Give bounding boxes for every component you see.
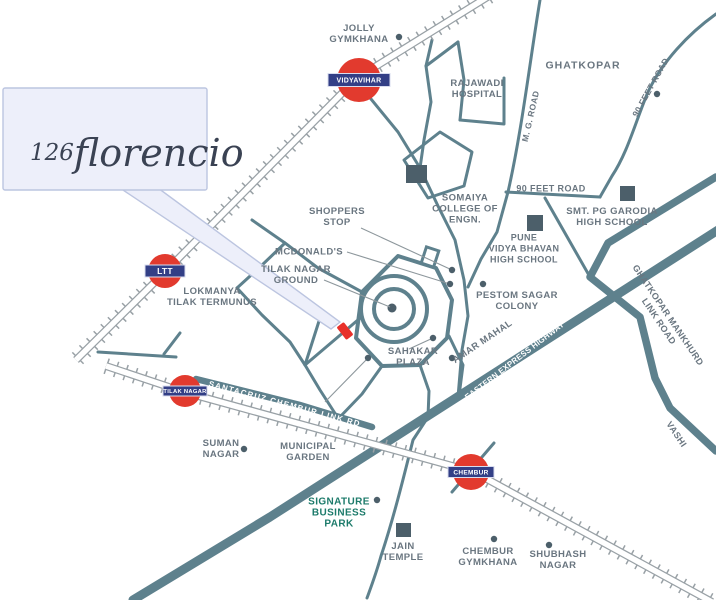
label-line: AMAR MAHAL (451, 318, 515, 366)
pune-vidya-square (527, 215, 543, 231)
sahakar-plaza-dot (430, 335, 436, 341)
jolly-gymkhana-dot (396, 34, 402, 40)
road-jain-curve (367, 365, 429, 598)
map-label-ghatkopar: GHATKOPAR (545, 60, 620, 72)
map-label-municipal-garden: MUNICIPALGARDEN (280, 441, 336, 463)
map-label-lokmanya-terminus: LOKMANYATILAK TERMUNUS (167, 286, 257, 308)
label-line: MCDONALD'S (275, 247, 343, 258)
label-line: BUSINESS (312, 508, 366, 519)
shoppers-leader (361, 228, 452, 270)
label-line: EASTERN EXPRESS HIGHWAY (463, 320, 566, 402)
ground-center-dot (388, 304, 397, 313)
label-line: GHATKOPAR (545, 60, 620, 72)
signature-park-dot (374, 497, 380, 503)
map-label-jolly-gymkhana: JOLLYGYMKHANA (329, 23, 388, 45)
shoppers-stop-dot (449, 267, 455, 273)
label-line: COLLEGE OF (432, 204, 498, 215)
label-line: GARDEN (286, 452, 330, 463)
label-line: NAGAR (540, 560, 577, 571)
label-line: PLAZA (396, 357, 430, 368)
label-line: GYMKHANA (329, 34, 388, 45)
map-label-jain-temple: JAINTEMPLE (383, 541, 424, 563)
map-label-ninety-feet-road-d: 90 FEET ROAD (630, 56, 671, 118)
shubhash-nagar-dot (546, 542, 552, 548)
jain-temple-square (396, 523, 411, 537)
label-line: SHOPPERS (309, 206, 365, 217)
label-line: TEMPLE (383, 552, 424, 563)
label-line: PESTOM SAGAR (476, 290, 558, 301)
label-line: SMT. PG GARODIA (566, 206, 658, 217)
label-line: MUNICIPAL (280, 441, 336, 452)
label-line: COLONY (495, 301, 538, 312)
label-line: GROUND (274, 275, 319, 286)
station-label: VIDYAVIHAR (336, 78, 381, 85)
label-line: JAIN (391, 541, 414, 552)
road-rajawadi-1 (420, 40, 432, 168)
station-label: CHEMBUR (453, 469, 488, 476)
ninety-feet-road-dot (654, 91, 660, 97)
map-label-garodia-school: SMT. PG GARODIAHIGH SCHOOL (566, 206, 658, 228)
map-label-shoppers-stop: SHOPPERSSTOP (309, 206, 365, 228)
chembur-gymkhana-dot (491, 536, 497, 542)
ring-street-dot (365, 355, 371, 361)
map-label-ninety-feet-road-h: 90 FEET ROAD (516, 184, 585, 194)
map-label-pestom-sagar: PESTOM SAGARCOLONY (476, 290, 558, 312)
pestom-sagar-dot (480, 281, 486, 287)
road-90ft-diagonal (600, 14, 716, 197)
station-label: TILAK NAGAR (163, 389, 207, 395)
map-label-mcdonalds: MCDONALD'S (275, 247, 343, 258)
map-labels: JOLLYGYMKHANAGHATKOPARRAJAWADIHOSPITALSO… (167, 23, 706, 571)
map-label-amar-mahal: AMAR MAHAL (451, 318, 515, 366)
label-line: SOMAIYA (442, 193, 488, 204)
label-line: VIDYA BHAVAN (489, 244, 560, 254)
road-colony-s1 (338, 366, 382, 419)
label-line: SUMAN (203, 438, 240, 449)
label-line: HOSPITAL (452, 89, 503, 100)
map-label-shubhash-nagar: SHUBHASHNAGAR (529, 549, 586, 571)
somaiya-square (406, 165, 427, 183)
label-line: TILAK NAGAR (261, 264, 331, 275)
label-line: LOKMANYA (183, 286, 240, 297)
map-label-somaiya-college: SOMAIYACOLLEGE OFENGN. (432, 193, 498, 226)
suman-nagar-dot (241, 446, 247, 452)
label-line: JOLLY (343, 23, 375, 34)
label-line: GYMKHANA (458, 557, 517, 568)
map-label-eastern-express-hwy: EASTERN EXPRESS HIGHWAY (463, 320, 566, 402)
mcdonalds-dot (447, 281, 453, 287)
label-line: TILAK TERMUNUS (167, 297, 257, 308)
label-line: STOP (323, 217, 351, 228)
label-line: NAGAR (203, 449, 240, 460)
label-line: PUNE (511, 233, 538, 243)
label-line: 90 FEET ROAD (630, 56, 671, 118)
project-callout: 126florencio (3, 88, 340, 329)
label-line: SAHAKAR (388, 346, 438, 357)
label-line: CHEMBUR (462, 546, 513, 557)
label-line: ENGN. (449, 215, 481, 226)
label-line: RAJAWADI (450, 78, 503, 89)
label-line: 90 FEET ROAD (516, 184, 585, 194)
label-line: SIGNATURE (308, 497, 370, 508)
project-number: 126 (30, 140, 74, 166)
map-label-rajawadi-hospital: RAJAWADIHOSPITAL (450, 78, 503, 100)
map-label-pune-vidya-bhavan: PUNEVIDYA BHAVANHIGH SCHOOL (489, 233, 560, 265)
road-garden-stub-v (164, 333, 180, 354)
map-label-signature-park: SIGNATUREBUSINESSPARK (308, 497, 370, 530)
map-label-chembur-gymkhana: CHEMBURGYMKHANA (458, 546, 517, 568)
location-map: 126florencio VIDYAVIHARLTTTILAK NAGARCHE… (0, 0, 716, 600)
label-line: PARK (324, 519, 354, 530)
station-label: LTT (157, 266, 173, 276)
label-line: SHUBHASH (529, 549, 586, 560)
project-name: florencio (71, 131, 244, 175)
label-line: HIGH SCHOOL (576, 217, 647, 228)
map-label-suman-nagar: SUMANNAGAR (203, 438, 240, 460)
map-canvas: 126florencio VIDYAVIHARLTTTILAK NAGARCHE… (0, 0, 716, 600)
label-line: HIGH SCHOOL (490, 255, 558, 265)
garodia-square (620, 186, 635, 201)
